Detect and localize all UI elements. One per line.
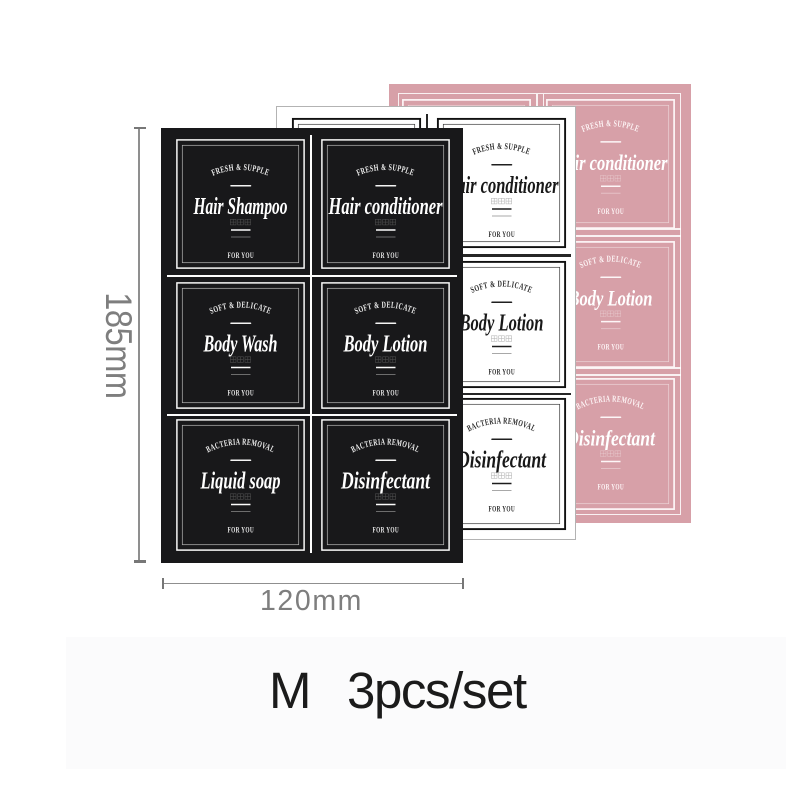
svg-text:FOR YOU: FOR YOU xyxy=(598,343,625,352)
svg-text:FOR YOU: FOR YOU xyxy=(372,251,399,260)
svg-text:FOR YOU: FOR YOU xyxy=(488,230,515,239)
svg-text:FOR YOU: FOR YOU xyxy=(228,525,255,534)
svg-text:Hair Shampoo: Hair Shampoo xyxy=(193,194,288,220)
svg-text:FRESH & SUPPLE: FRESH & SUPPLE xyxy=(470,141,531,157)
svg-text:Body Lotion: Body Lotion xyxy=(458,310,543,336)
svg-text:FOR YOU: FOR YOU xyxy=(598,483,625,492)
svg-text:SOFT & DELICATE: SOFT & DELICATE xyxy=(578,254,643,270)
svg-text:Disinfectant: Disinfectant xyxy=(340,468,431,494)
svg-text:FOR YOU: FOR YOU xyxy=(228,388,255,397)
svg-text:SOFT & DELICATE: SOFT & DELICATE xyxy=(468,278,533,294)
svg-text:BACTERIA REMOVAL: BACTERIA REMOVAL xyxy=(574,393,646,411)
svg-text:BACTERIA REMOVAL: BACTERIA REMOVAL xyxy=(204,436,276,454)
svg-text:FRESH & SUPPLE: FRESH & SUPPLE xyxy=(210,162,271,178)
svg-text:FOR YOU: FOR YOU xyxy=(598,207,625,216)
svg-text:Body Wash: Body Wash xyxy=(203,331,278,357)
svg-text:FOR YOU: FOR YOU xyxy=(372,388,399,397)
svg-text:FRESH & SUPPLE: FRESH & SUPPLE xyxy=(580,118,641,134)
svg-text:Body Lotion: Body Lotion xyxy=(342,331,427,357)
svg-text:Hair conditioner: Hair conditioner xyxy=(327,194,442,220)
svg-text:SOFT & DELICATE: SOFT & DELICATE xyxy=(208,299,273,315)
svg-text:Disinfectant: Disinfectant xyxy=(565,426,656,451)
svg-text:BACTERIA REMOVAL: BACTERIA REMOVAL xyxy=(465,415,537,433)
svg-text:FOR YOU: FOR YOU xyxy=(488,504,515,513)
svg-text:Body Lotion: Body Lotion xyxy=(568,286,653,311)
svg-text:FOR YOU: FOR YOU xyxy=(228,251,255,260)
svg-text:BACTERIA REMOVAL: BACTERIA REMOVAL xyxy=(349,436,421,454)
svg-text:Liquid soap: Liquid soap xyxy=(200,468,281,494)
svg-text:FOR YOU: FOR YOU xyxy=(488,367,515,376)
svg-text:Disinfectant: Disinfectant xyxy=(456,447,547,473)
svg-text:SOFT & DELICATE: SOFT & DELICATE xyxy=(352,299,417,315)
svg-text:FRESH & SUPPLE: FRESH & SUPPLE xyxy=(354,162,415,178)
svg-text:FOR YOU: FOR YOU xyxy=(372,525,399,534)
